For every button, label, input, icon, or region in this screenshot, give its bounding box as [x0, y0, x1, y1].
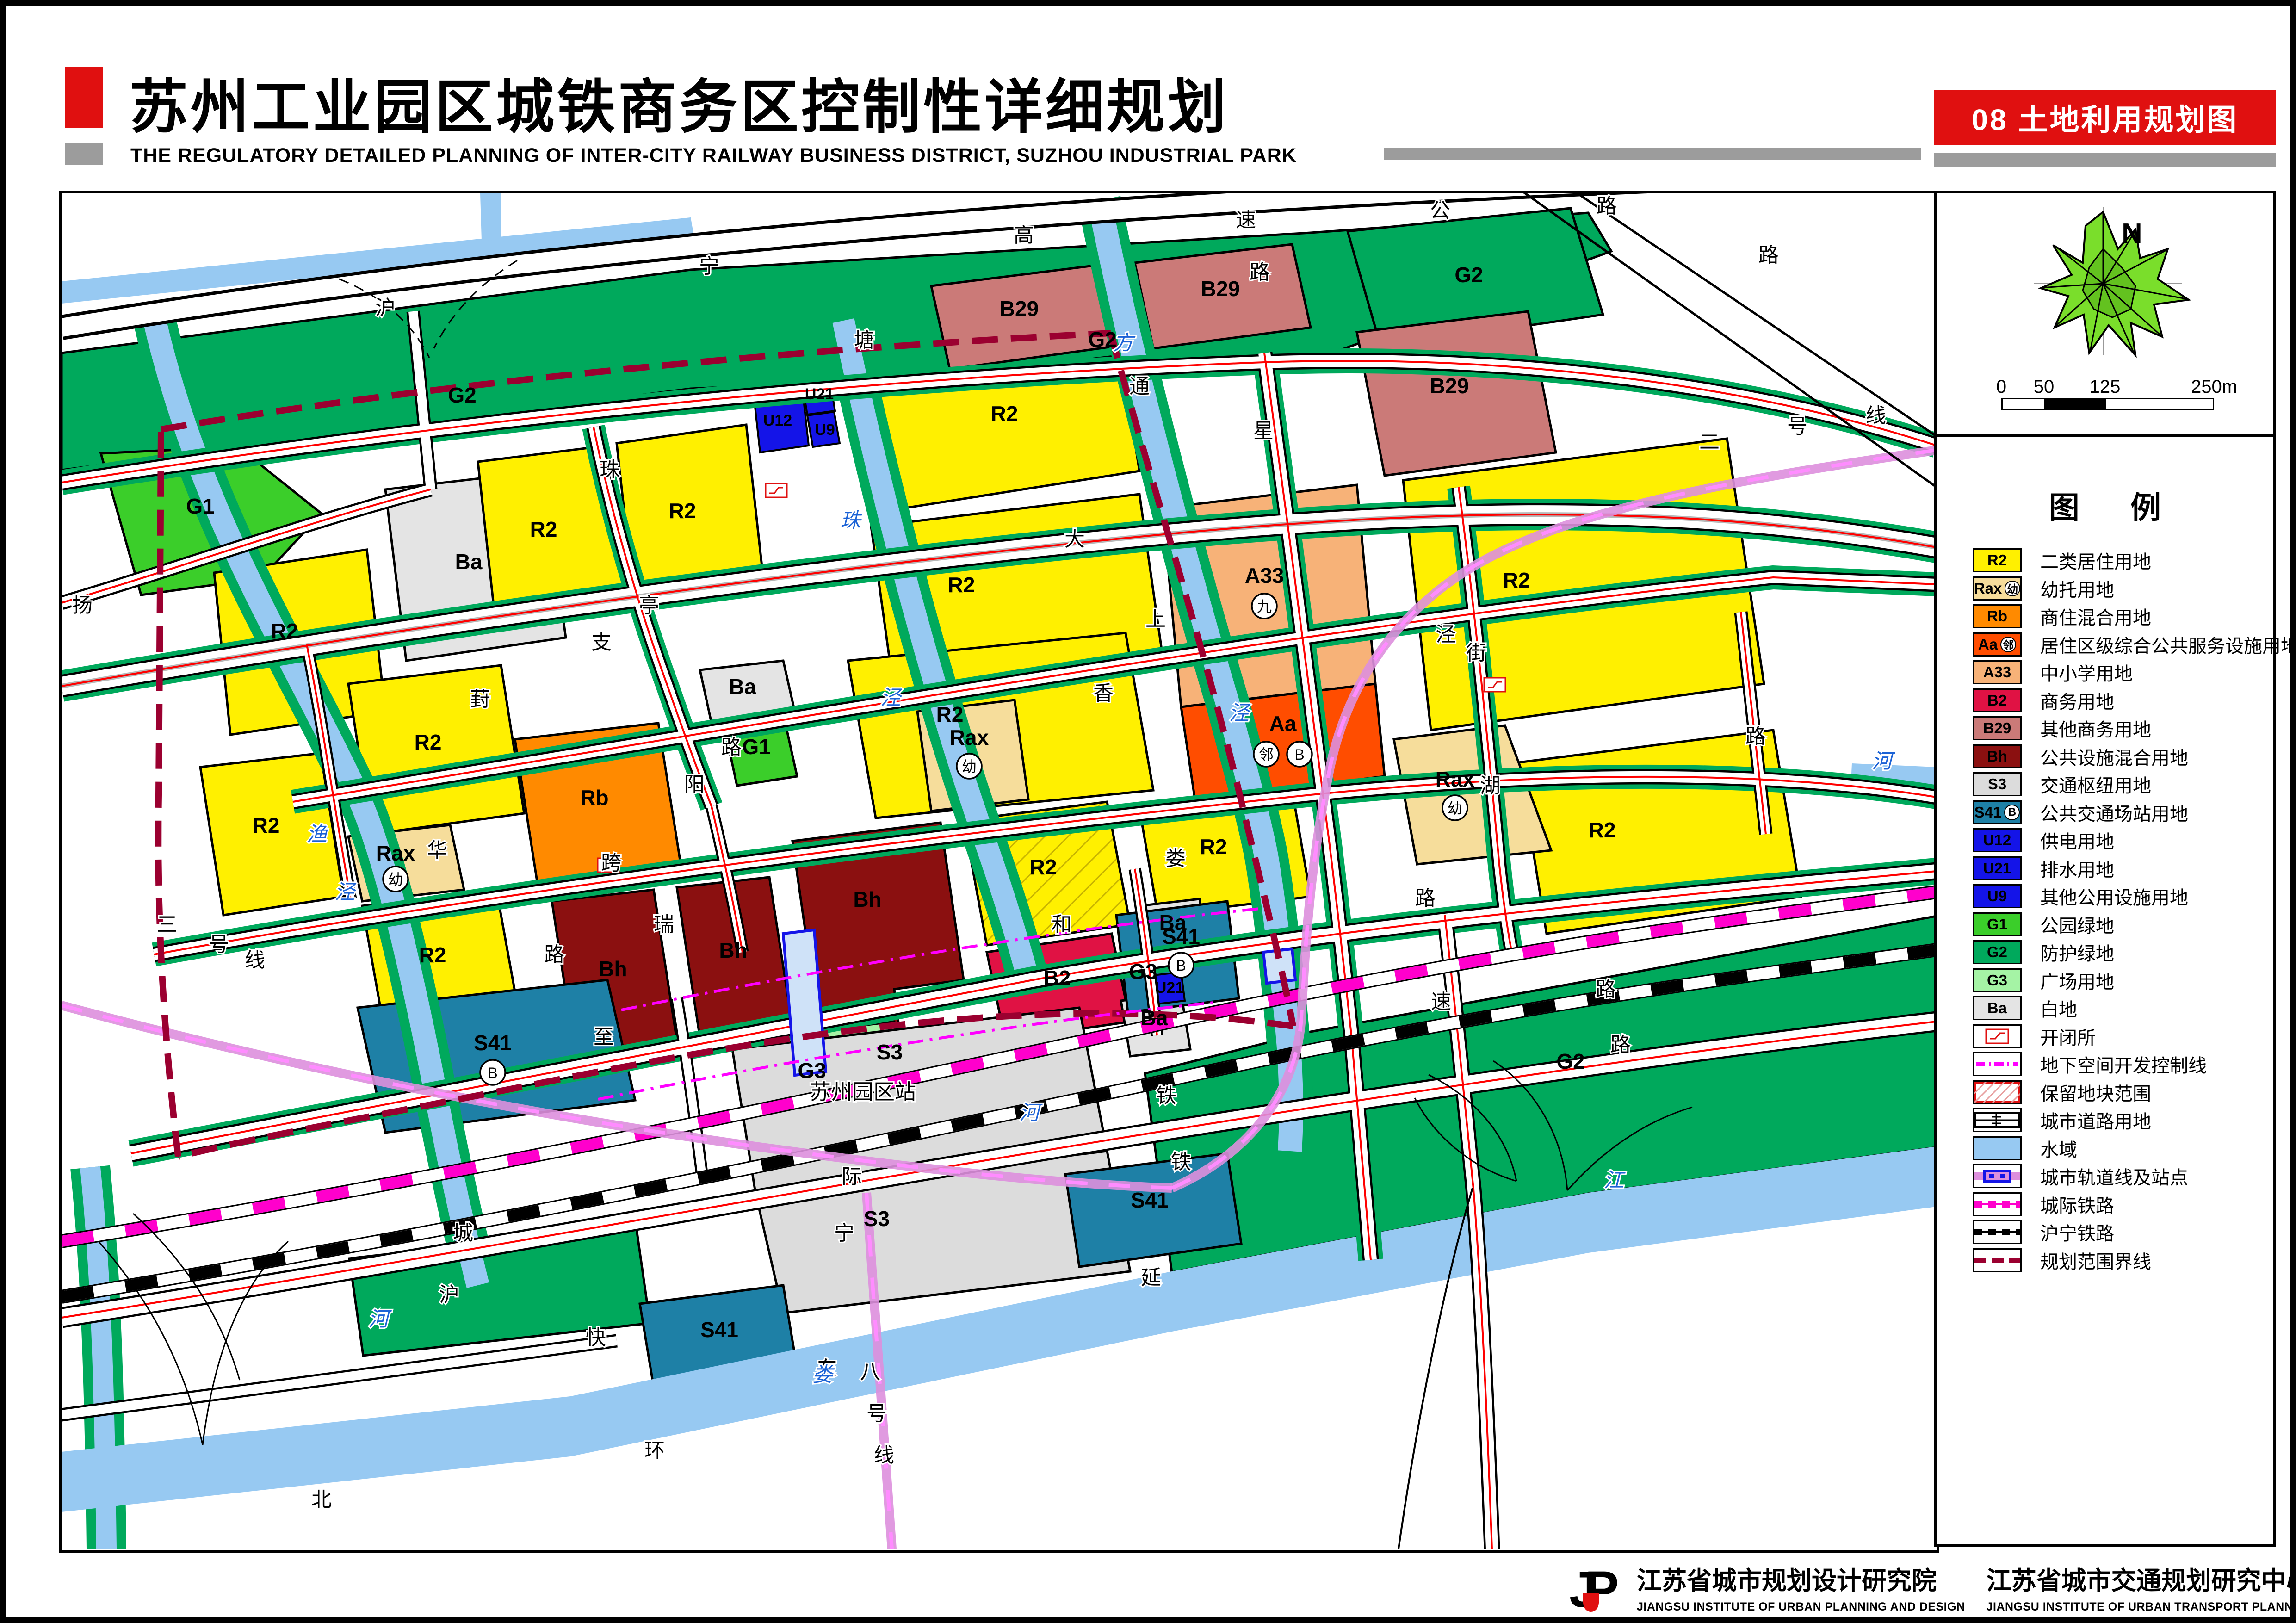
legend-item: 沪宁铁路 [1973, 1220, 2114, 1245]
legend-item: B2商务用地 [1973, 688, 2114, 713]
legend-item: U21排水用地 [1973, 856, 2114, 881]
svg-text:延: 延 [1141, 1266, 1161, 1289]
svg-text:高: 高 [1014, 224, 1034, 247]
svg-text:支: 支 [591, 631, 612, 654]
svg-text:九: 九 [1257, 598, 1272, 615]
legend-label: 开闭所 [2040, 1023, 2096, 1050]
legend-item: Ba白地 [1973, 996, 2077, 1021]
svg-text:珠: 珠 [840, 509, 862, 532]
legend-item: 城市道路用地 [1973, 1108, 2151, 1133]
legend-item: Bh公共设施混合用地 [1973, 744, 2188, 769]
svg-text:A33: A33 [1245, 564, 1284, 588]
svg-text:幼: 幼 [388, 871, 403, 888]
legend-swatch: Aa邻 [1973, 632, 2022, 657]
legend-swatch: U12 [1973, 828, 2022, 852]
svg-text:沪: 沪 [439, 1283, 459, 1306]
legend-label: 地下空间开发控制线 [2040, 1051, 2207, 1078]
legend-item: 地下空间开发控制线 [1973, 1052, 2207, 1077]
svg-text:邻: 邻 [1259, 746, 1274, 763]
svg-text:路: 路 [1250, 261, 1270, 284]
svg-text:Bh: Bh [719, 938, 747, 962]
svg-text:路: 路 [1597, 195, 1617, 217]
legend-label: 水域 [2040, 1135, 2077, 1162]
legend-swatch [1973, 1024, 2022, 1048]
legend-swatch [1973, 1080, 2022, 1104]
legend-swatch: S41B [1973, 800, 2022, 824]
page-subtitle: THE REGULATORY DETAILED PLANNING OF INTE… [130, 144, 1297, 167]
legend-swatch: G3 [1973, 968, 2022, 992]
legend-swatch: Rb [1973, 604, 2022, 628]
svg-text:泾: 泾 [1436, 623, 1456, 646]
svg-text:Rax: Rax [376, 841, 415, 865]
legend-item: U9其他公用设施用地 [1973, 884, 2188, 909]
page-title: 苏州工业园区城铁商务区控制性详细规划 [130, 60, 1229, 144]
legend-label: 保留地块范围 [2040, 1079, 2151, 1106]
svg-text:娄: 娄 [1165, 847, 1186, 870]
scale-tick: 125 [2090, 377, 2121, 397]
legend-swatch: B29 [1973, 716, 2022, 740]
svg-text:U12: U12 [763, 412, 792, 429]
scale-bar-ticks: 050125250m [2001, 377, 2214, 398]
svg-text:R2: R2 [271, 619, 298, 643]
legend-label: 交通枢纽用地 [2040, 771, 2151, 798]
org1-name-zh: 江苏省城市规划设计研究院 [1637, 1560, 1965, 1597]
svg-text:号: 号 [209, 933, 229, 956]
legend-label: 排水用地 [2040, 855, 2114, 882]
legend-item: 城际铁路 [1973, 1192, 2114, 1217]
svg-text:U9: U9 [815, 421, 835, 439]
footer: J P 江苏省城市规划设计研究院 JIANGSU INSTITUTE OF UR… [1569, 1560, 2282, 1620]
org2-name-en: JIANGSU INSTITUTE OF URBAN TRANSPORT PLA… [1987, 1600, 2296, 1614]
legend-label: 城际铁路 [2040, 1191, 2114, 1218]
svg-text:Rb: Rb [580, 786, 608, 810]
svg-text:S3: S3 [864, 1207, 890, 1231]
svg-text:娄: 娄 [812, 1363, 835, 1386]
svg-text:线: 线 [245, 949, 265, 972]
svg-text:G2: G2 [1556, 1049, 1584, 1073]
legend-item: S41B公共交通场站用地 [1973, 800, 2188, 825]
svg-text:际: 际 [842, 1165, 862, 1188]
legend-item: 城市轨道线及站点 [1973, 1164, 2188, 1189]
svg-text:S41: S41 [700, 1318, 738, 1342]
svg-text:河: 河 [1872, 750, 1895, 773]
svg-text:U21: U21 [805, 385, 834, 403]
svg-text:街: 街 [1466, 642, 1486, 664]
svg-text:跨: 跨 [601, 852, 621, 874]
svg-text:三: 三 [157, 913, 177, 936]
svg-text:B: B [1176, 957, 1186, 974]
scale-bar-segments [2001, 398, 2214, 410]
svg-text:R2: R2 [1030, 855, 1057, 879]
svg-text:U21: U21 [1155, 979, 1184, 997]
header-divider-bar [1384, 148, 1921, 160]
svg-text:阳: 阳 [684, 773, 705, 796]
svg-text:路: 路 [1596, 978, 1616, 1001]
svg-text:号: 号 [866, 1402, 887, 1425]
svg-text:G1: G1 [742, 735, 770, 759]
legend-label: 其他公用设施用地 [2040, 883, 2188, 910]
svg-text:大: 大 [1064, 528, 1085, 551]
legend-item: Rax幼幼托用地 [1973, 576, 2114, 601]
legend-item: Rb商住混合用地 [1973, 604, 2151, 629]
legend-label: 规划范围界线 [2040, 1247, 2151, 1274]
svg-text:G2: G2 [1454, 263, 1483, 287]
svg-text:Ba: Ba [729, 675, 756, 699]
legend-label: 居住区级综合公共服务设施用地 [2040, 631, 2296, 658]
svg-text:河: 河 [1019, 1102, 1043, 1124]
svg-text:S41: S41 [474, 1031, 512, 1055]
svg-text:苏州园区站: 苏州园区站 [810, 1080, 916, 1104]
legend-item: A33中小学用地 [1973, 660, 2133, 685]
legend-swatch: G1 [1973, 912, 2022, 936]
svg-text:Ba: Ba [1141, 1006, 1168, 1030]
legend-swatch: B2 [1973, 688, 2022, 712]
sheet-number-underbar [1934, 153, 2276, 167]
plan-sheet: 苏州工业园区城铁商务区控制性详细规划 THE REGULATORY DETAIL… [0, 0, 2296, 1623]
svg-text:泾: 泾 [1229, 702, 1251, 725]
svg-text:铁: 铁 [1171, 1151, 1191, 1173]
svg-text:瑞: 瑞 [654, 913, 674, 936]
legend-item: 开闭所 [1973, 1024, 2096, 1049]
legend-swatch: G2 [1973, 940, 2022, 964]
legend-label: 供电用地 [2040, 827, 2114, 854]
svg-text:湖: 湖 [1480, 774, 1500, 797]
legend-item: 保留地块范围 [1973, 1080, 2151, 1105]
legend-swatch: Ba [1973, 996, 2022, 1020]
svg-text:G1: G1 [186, 494, 214, 518]
svg-text:Aa: Aa [1269, 712, 1297, 736]
svg-text:方: 方 [1113, 332, 1136, 354]
legend-label: 广场用地 [2040, 967, 2114, 994]
legend-item: B29其他商务用地 [1973, 716, 2151, 741]
svg-text:R2: R2 [948, 573, 975, 597]
svg-text:沪: 沪 [375, 297, 396, 319]
svg-text:Rax: Rax [1436, 767, 1475, 791]
svg-text:葑: 葑 [470, 688, 490, 711]
svg-text:环: 环 [644, 1439, 665, 1462]
legend-swatch [1973, 1052, 2022, 1076]
svg-text:亭: 亭 [639, 594, 659, 617]
org-planning-institute: 江苏省城市规划设计研究院 JIANGSU INSTITUTE OF URBAN … [1637, 1560, 1965, 1614]
svg-text:G3: G3 [1129, 960, 1157, 984]
legend-swatch [1973, 1248, 2022, 1272]
legend-label: 防护绿地 [2040, 939, 2114, 966]
scale-segment [2003, 399, 2044, 409]
legend-panel: 图 例 R2二类居住用地Rax幼幼托用地Rb商住混合用地Aa邻居住区级综合公共服… [1934, 437, 2276, 1547]
svg-text:R2: R2 [669, 499, 696, 523]
institute-logo: J P [1569, 1560, 1625, 1616]
svg-text:城: 城 [453, 1222, 473, 1245]
legend-swatch: U21 [1973, 856, 2022, 880]
svg-text:和: 和 [1052, 913, 1072, 936]
svg-text:幼: 幼 [962, 758, 977, 775]
org2-name-zh: 江苏省城市交通规划研究中心 [1987, 1560, 2296, 1597]
legend-swatch [1973, 1220, 2022, 1244]
legend-item: 水域 [1973, 1136, 2077, 1161]
landuse-map: G2G2G2G1G2B29B29B29R2R2R2A33九Aa邻BR2BaR2R… [59, 191, 1939, 1553]
legend-item: Aa邻居住区级综合公共服务设施用地 [1973, 632, 2296, 657]
legend-label: 幼托用地 [2040, 575, 2114, 602]
svg-text:线: 线 [1866, 404, 1886, 427]
svg-text:S41: S41 [1131, 1188, 1169, 1212]
svg-text:扬: 扬 [72, 594, 93, 617]
svg-text:华: 华 [427, 839, 447, 862]
svg-text:R2: R2 [1200, 835, 1227, 859]
svg-text:R2: R2 [991, 402, 1018, 426]
legend-label: 白地 [2040, 995, 2077, 1022]
svg-text:公: 公 [1430, 199, 1450, 222]
svg-text:R2: R2 [253, 813, 280, 837]
legend-swatch [1973, 1164, 2022, 1188]
svg-text:渔: 渔 [307, 823, 328, 846]
svg-text:Ba: Ba [455, 550, 483, 574]
svg-text:通: 通 [1129, 375, 1150, 398]
svg-text:路: 路 [721, 736, 742, 759]
svg-text:路: 路 [1745, 725, 1766, 748]
legend-swatch: R2 [1973, 548, 2022, 572]
legend-swatch [1973, 1136, 2022, 1160]
title-red-chip [65, 67, 103, 128]
svg-text:R2: R2 [936, 702, 964, 726]
legend-label: 商住混合用地 [2040, 603, 2151, 630]
north-scale-panel: N 050125250m [1934, 191, 2276, 437]
svg-text:B: B [488, 1065, 497, 1081]
svg-text:快: 快 [586, 1326, 606, 1349]
subtitle-gray-chip [65, 143, 103, 165]
legend-title: 图 例 [1937, 483, 2273, 527]
scale-segment [2105, 399, 2213, 409]
svg-text:幼: 幼 [1448, 800, 1462, 817]
svg-text:路: 路 [544, 943, 564, 966]
legend-item: S3交通枢纽用地 [1973, 772, 2151, 797]
svg-text:S41: S41 [1162, 924, 1200, 948]
legend-label: 商务用地 [2040, 687, 2114, 714]
svg-text:号: 号 [1787, 415, 1807, 438]
scale-tick: 50 [2034, 377, 2055, 397]
legend-swatch: Rax幼 [1973, 576, 2022, 601]
svg-text:B2: B2 [1044, 966, 1071, 990]
sheet-number-badge: 08 土地利用规划图 [1934, 90, 2276, 145]
legend-label: 二类居住用地 [2040, 547, 2151, 574]
legend-item: G3广场用地 [1973, 968, 2114, 993]
svg-text:B29: B29 [1201, 277, 1240, 301]
svg-text:Bh: Bh [599, 957, 627, 981]
scale-tick: 250m [2191, 377, 2237, 397]
svg-text:B: B [1294, 746, 1304, 763]
svg-text:江: 江 [1603, 1169, 1626, 1192]
legend-swatch: Bh [1973, 744, 2022, 768]
org-transport-institute: 江苏省城市交通规划研究中心 JIANGSU INSTITUTE OF URBAN… [1987, 1560, 2296, 1614]
svg-text:B29: B29 [1430, 374, 1469, 398]
legend-label: 其他商务用地 [2040, 715, 2151, 742]
svg-text:速: 速 [1236, 209, 1256, 231]
scale-bar: 050125250m [2001, 377, 2214, 410]
svg-text:河: 河 [368, 1308, 392, 1331]
svg-text:G3: G3 [798, 1059, 826, 1083]
svg-text:八: 八 [860, 1361, 880, 1383]
legend-swatch [1973, 1108, 2022, 1132]
svg-text:泾: 泾 [880, 687, 903, 709]
legend-label: 公园绿地 [2040, 911, 2114, 938]
legend-label: 公共交通场站用地 [2040, 799, 2188, 826]
svg-text:路: 路 [1415, 887, 1436, 910]
svg-text:S3: S3 [877, 1040, 903, 1064]
scale-segment [2044, 399, 2105, 409]
svg-text:泾: 泾 [334, 881, 357, 904]
svg-text:珠: 珠 [600, 458, 620, 481]
legend-item: G2防护绿地 [1973, 940, 2114, 965]
svg-text:星: 星 [1253, 420, 1274, 442]
svg-text:上: 上 [1145, 608, 1166, 631]
legend-item: 规划范围界线 [1973, 1248, 2151, 1273]
svg-text:路: 路 [1610, 1034, 1631, 1056]
scale-tick: 0 [1996, 377, 2006, 397]
svg-text:G2: G2 [1088, 328, 1116, 352]
svg-text:二: 二 [1699, 431, 1720, 453]
wind-rose-icon [1937, 193, 2273, 369]
legend-item: R2二类居住用地 [1973, 548, 2151, 573]
svg-text:R2: R2 [419, 943, 446, 967]
legend-swatch: U9 [1973, 884, 2022, 908]
org1-name-en: JIANGSU INSTITUTE OF URBAN PLANNING AND … [1637, 1600, 1965, 1614]
svg-text:速: 速 [1431, 991, 1451, 1013]
svg-text:R2: R2 [415, 730, 442, 754]
svg-text:铁: 铁 [1156, 1084, 1176, 1107]
legend-label: 沪宁铁路 [2040, 1219, 2114, 1245]
svg-text:路: 路 [1758, 244, 1779, 266]
legend-swatch: S3 [1973, 772, 2022, 796]
svg-text:G2: G2 [448, 383, 476, 407]
svg-text:B29: B29 [1000, 297, 1039, 321]
legend-label: 城市道路用地 [2040, 1107, 2151, 1134]
svg-text:至: 至 [594, 1026, 614, 1048]
legend-item: G1公园绿地 [1973, 912, 2114, 937]
svg-text:Rax: Rax [950, 725, 989, 750]
svg-text:R2: R2 [1503, 568, 1530, 592]
logo-red-dot [1583, 1593, 1599, 1612]
svg-text:宁: 宁 [699, 255, 719, 278]
svg-text:塘: 塘 [854, 329, 874, 352]
svg-text:R2: R2 [530, 517, 557, 541]
legend-label: 城市轨道线及站点 [2040, 1163, 2188, 1189]
map-canvas: G2G2G2G1G2B29B29B29R2R2R2A33九Aa邻BR2BaR2R… [62, 193, 1937, 1550]
svg-text:线: 线 [874, 1444, 894, 1467]
svg-text:R2: R2 [1589, 818, 1616, 842]
legend-item: U12供电用地 [1973, 828, 2114, 853]
north-label: N [2122, 217, 2142, 250]
svg-text:宁: 宁 [834, 1222, 854, 1245]
legend-swatch [1973, 1192, 2022, 1216]
legend-swatch: A33 [1973, 660, 2022, 684]
legend-label: 中小学用地 [2040, 659, 2133, 686]
svg-text:Bh: Bh [853, 887, 881, 911]
svg-text:北: 北 [311, 1488, 332, 1511]
legend-label: 公共设施混合用地 [2040, 743, 2188, 770]
svg-text:香: 香 [1093, 682, 1114, 705]
